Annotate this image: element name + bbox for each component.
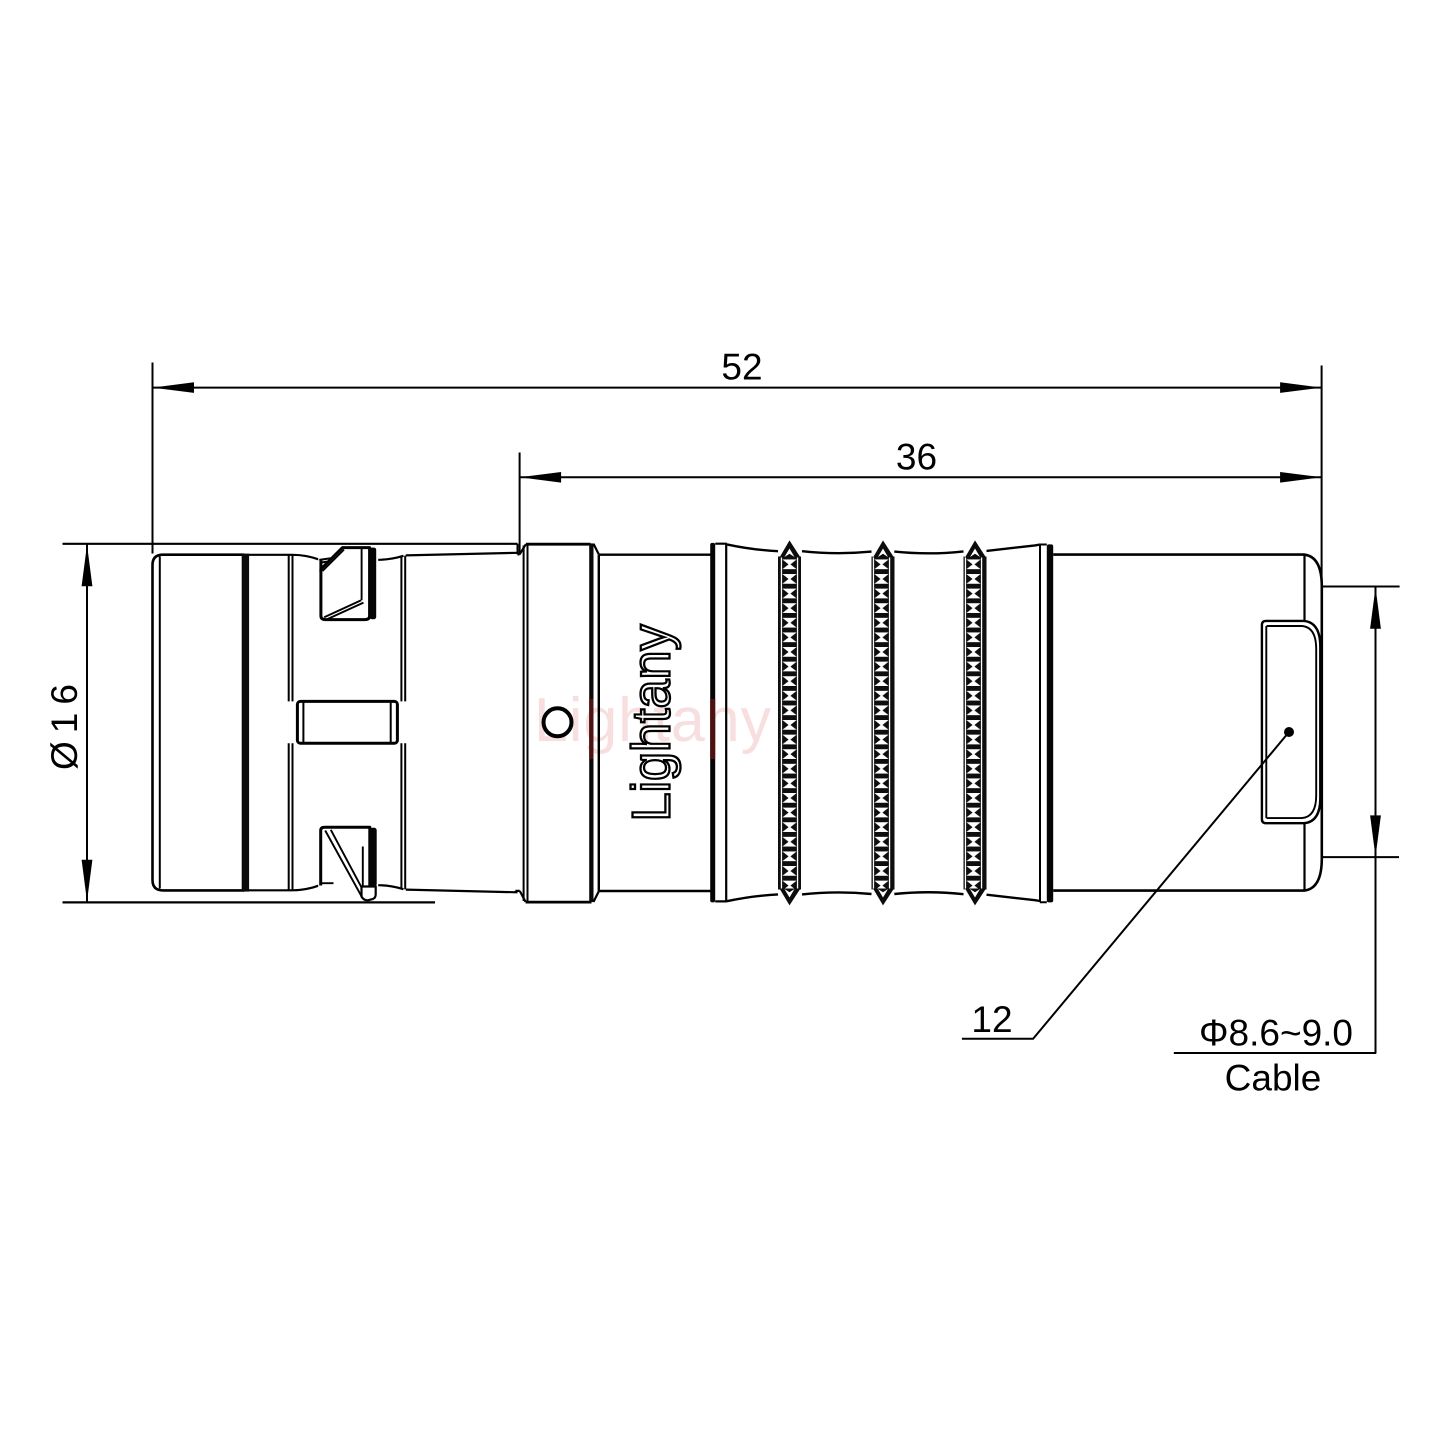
svg-text:36: 36 (896, 436, 937, 477)
svg-text:Φ8.6~9.0: Φ8.6~9.0 (1199, 1012, 1353, 1053)
svg-text:Ø16: Ø16 (44, 684, 85, 770)
svg-text:Lightany: Lightany (622, 625, 682, 822)
svg-text:Cable: Cable (1225, 1058, 1322, 1099)
svg-text:52: 52 (721, 347, 762, 388)
svg-text:12: 12 (971, 999, 1012, 1040)
